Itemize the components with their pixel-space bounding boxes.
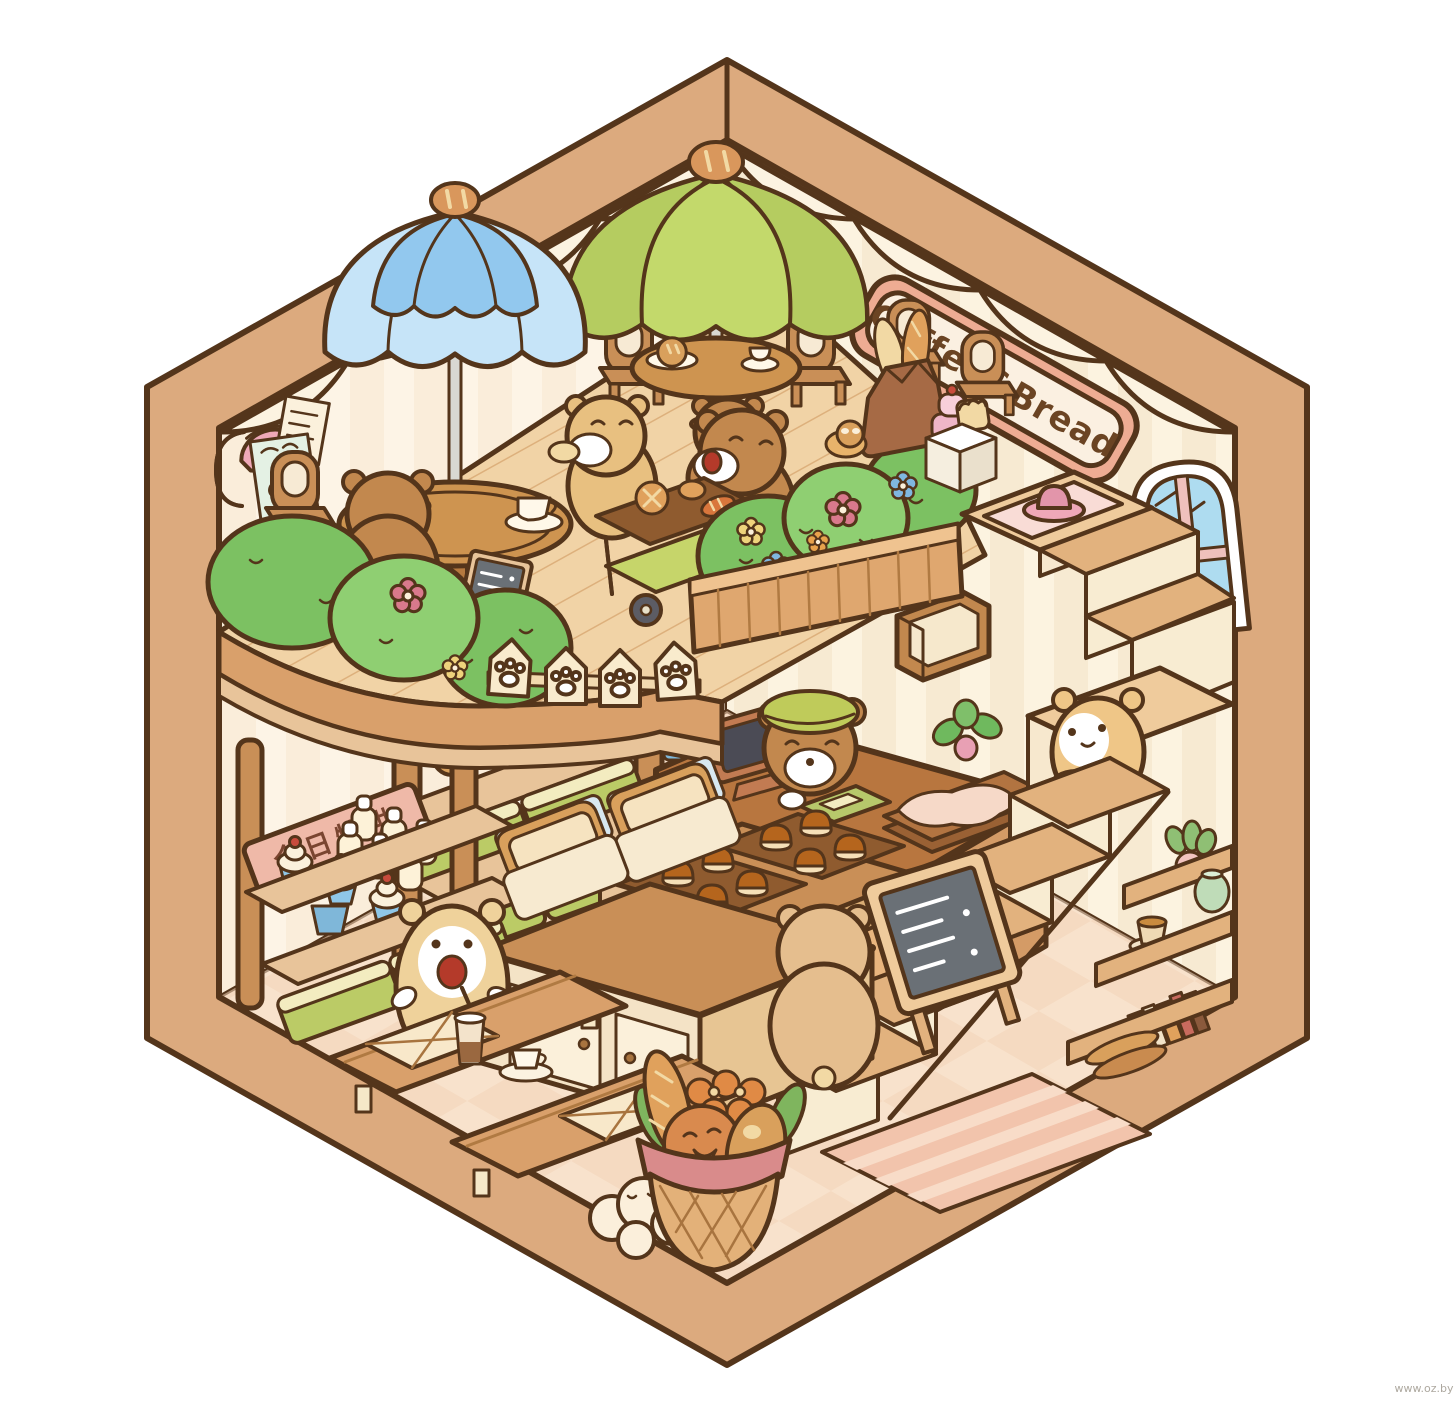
open-mouth (438, 956, 466, 988)
pudding (801, 811, 831, 836)
bear-paw (779, 791, 805, 809)
green-cap (762, 691, 858, 733)
pudding (835, 835, 865, 860)
iced-coffee (455, 1013, 485, 1064)
blue-bucket (312, 906, 348, 934)
customer-bear (770, 906, 878, 1089)
door-knob (579, 1039, 589, 1049)
bear-tail (813, 1067, 835, 1089)
bread-in-paws (549, 442, 579, 462)
green-jar (1195, 870, 1229, 912)
pretzel (837, 421, 863, 447)
pudding (737, 871, 767, 896)
bagel (636, 482, 668, 514)
bread-finial (431, 183, 479, 217)
bear-muzzle (785, 749, 835, 787)
pudding (761, 825, 791, 850)
bakery-illustration: Coffee&Bread (0, 0, 1454, 1401)
watermark: www.oz.by (1395, 1382, 1454, 1395)
bread-finial (689, 142, 743, 182)
bread-bun (658, 338, 687, 367)
coffee-cup (750, 348, 770, 360)
door-knob (625, 1053, 635, 1063)
pudding (795, 849, 825, 874)
coffee-cup (518, 498, 550, 520)
